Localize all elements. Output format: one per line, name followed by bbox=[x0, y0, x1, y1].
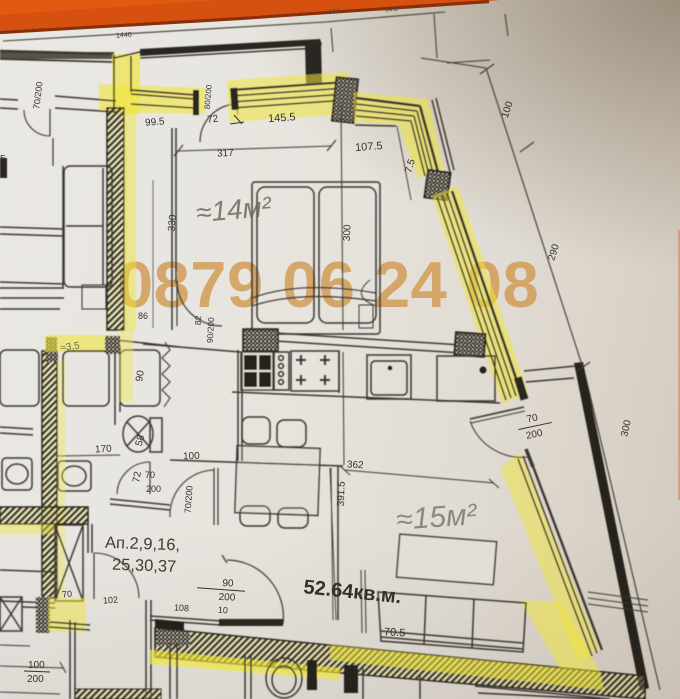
svg-text:5: 5 bbox=[0, 154, 6, 165]
svg-text:82: 82 bbox=[193, 315, 203, 325]
svg-text:102: 102 bbox=[103, 594, 119, 605]
svg-text:86: 86 bbox=[138, 311, 148, 321]
svg-text:145.5: 145.5 bbox=[268, 111, 296, 125]
svg-text:107.5: 107.5 bbox=[355, 140, 383, 154]
svg-text:90: 90 bbox=[222, 578, 234, 590]
svg-text:200: 200 bbox=[218, 592, 236, 604]
svg-text:70/200: 70/200 bbox=[31, 81, 44, 110]
svg-text:108: 108 bbox=[174, 602, 190, 613]
svg-text:100: 100 bbox=[183, 451, 200, 463]
svg-text:1440: 1440 bbox=[116, 32, 132, 40]
svg-text:330: 330 bbox=[167, 214, 179, 232]
svg-text:25,30,37: 25,30,37 bbox=[112, 556, 177, 576]
svg-text:≈14м²: ≈14м² bbox=[195, 191, 274, 229]
svg-text:290: 290 bbox=[546, 242, 562, 262]
svg-text:317: 317 bbox=[217, 148, 235, 160]
svg-text:70.5: 70.5 bbox=[384, 626, 406, 639]
svg-text:90/200: 90/200 bbox=[205, 317, 216, 344]
svg-text:≈15м²: ≈15м² bbox=[395, 498, 479, 537]
svg-text:200: 200 bbox=[525, 428, 544, 442]
svg-text:70: 70 bbox=[62, 589, 73, 600]
svg-text:100: 100 bbox=[500, 100, 516, 120]
svg-text:362: 362 bbox=[347, 459, 365, 471]
svg-text:70: 70 bbox=[526, 412, 540, 425]
svg-text:170: 170 bbox=[95, 444, 113, 456]
svg-text:70/200: 70/200 bbox=[183, 485, 195, 513]
svg-text:300: 300 bbox=[619, 419, 634, 438]
svg-text:58: 58 bbox=[134, 433, 148, 447]
svg-text:300: 300 bbox=[342, 224, 354, 242]
svg-text:14.5: 14.5 bbox=[328, 8, 341, 16]
svg-text:10: 10 bbox=[218, 605, 229, 616]
svg-text:70: 70 bbox=[145, 470, 155, 480]
svg-text:34.5: 34.5 bbox=[385, 6, 398, 14]
svg-text:Ап.2,9,16,: Ап.2,9,16, bbox=[105, 534, 181, 555]
svg-text:200: 200 bbox=[27, 674, 44, 685]
svg-text:90: 90 bbox=[134, 369, 147, 382]
svg-text:200: 200 bbox=[146, 484, 161, 494]
svg-text:100: 100 bbox=[28, 660, 45, 671]
svg-text:391.5: 391.5 bbox=[336, 481, 348, 507]
svg-text:99.5: 99.5 bbox=[145, 116, 166, 128]
svg-text:72: 72 bbox=[131, 470, 144, 483]
svg-text:52.64кв.м.: 52.64кв.м. bbox=[302, 576, 402, 608]
svg-text:80/200: 80/200 bbox=[203, 84, 214, 110]
svg-text:72: 72 bbox=[207, 114, 220, 126]
